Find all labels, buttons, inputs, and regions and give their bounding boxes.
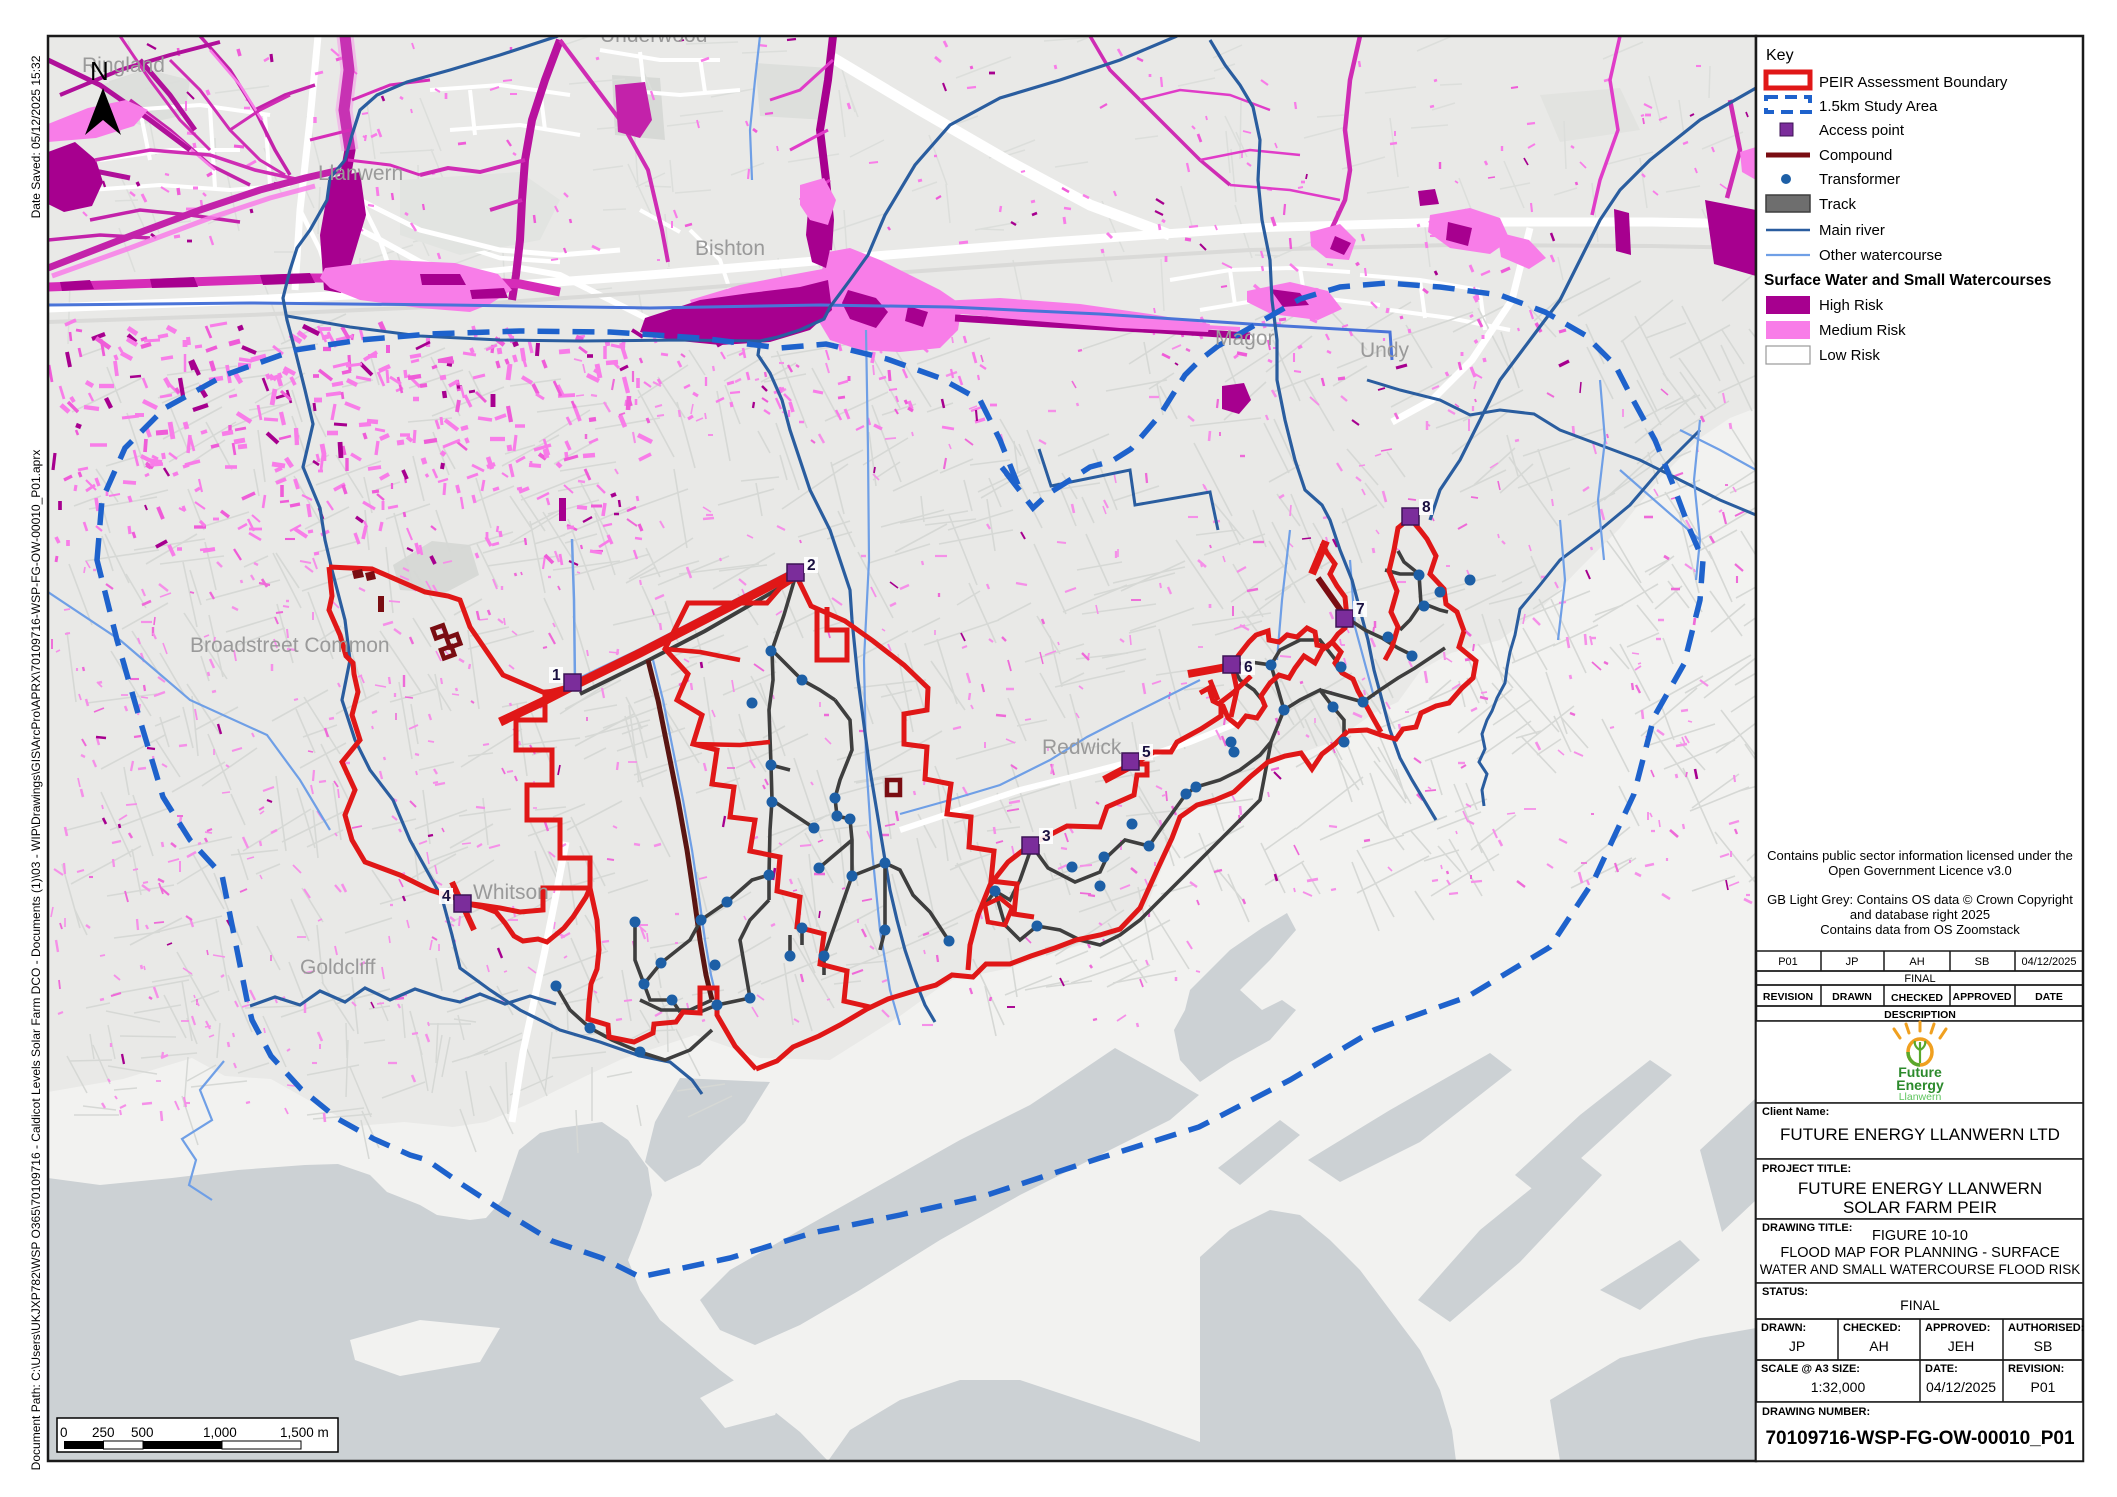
svg-text:04/12/2025: 04/12/2025 bbox=[1926, 1379, 1996, 1395]
svg-text:Key: Key bbox=[1766, 47, 1794, 64]
svg-text:SB: SB bbox=[2034, 1338, 2053, 1354]
svg-text:DATE: DATE bbox=[2035, 991, 2063, 1003]
svg-text:4: 4 bbox=[442, 888, 451, 905]
svg-text:Goldcliff: Goldcliff bbox=[300, 956, 376, 979]
svg-text:P01: P01 bbox=[1778, 956, 1798, 968]
svg-text:STATUS:: STATUS: bbox=[1762, 1286, 1808, 1298]
svg-text:Medium Risk: Medium Risk bbox=[1819, 322, 1906, 339]
svg-text:FUTURE ENERGY LLANWERN: FUTURE ENERGY LLANWERN bbox=[1798, 1179, 2042, 1198]
svg-text:DATE:: DATE: bbox=[1925, 1363, 1958, 1375]
svg-text:JEH: JEH bbox=[1948, 1338, 1974, 1354]
svg-text:WATER AND SMALL WATERCOURSE FL: WATER AND SMALL WATERCOURSE FLOOD RISK bbox=[1760, 1262, 2081, 1277]
svg-text:FLOOD MAP FOR PLANNING - SURFA: FLOOD MAP FOR PLANNING - SURFACE bbox=[1780, 1245, 2060, 1261]
svg-text:PEIR Assessment Boundary: PEIR Assessment Boundary bbox=[1819, 74, 2008, 91]
svg-text:Access point: Access point bbox=[1819, 122, 1905, 139]
svg-text:FIGURE 10-10: FIGURE 10-10 bbox=[1872, 1228, 1968, 1244]
svg-text:Contains data from OS Zoomstac: Contains data from OS Zoomstack bbox=[1820, 922, 2020, 937]
svg-text:DRAWING TITLE:: DRAWING TITLE: bbox=[1762, 1222, 1852, 1234]
svg-text:1.5km Study Area: 1.5km Study Area bbox=[1819, 98, 1938, 115]
svg-text:SOLAR FARM PEIR: SOLAR FARM PEIR bbox=[1843, 1198, 1997, 1217]
svg-text:SCALE @ A3 SIZE:: SCALE @ A3 SIZE: bbox=[1761, 1363, 1860, 1375]
svg-text:1,500 m: 1,500 m bbox=[280, 1425, 329, 1440]
svg-text:CHECKED: CHECKED bbox=[1891, 992, 1943, 1004]
svg-text:04/12/2025: 04/12/2025 bbox=[2021, 956, 2076, 968]
svg-text:JP: JP bbox=[1846, 956, 1859, 968]
svg-text:Main river: Main river bbox=[1819, 222, 1885, 239]
svg-text:Other watercourse: Other watercourse bbox=[1819, 247, 1942, 264]
svg-text:AUTHORISED:: AUTHORISED: bbox=[2008, 1322, 2084, 1334]
svg-text:REVISION: REVISION bbox=[1763, 991, 1813, 1003]
svg-text:Magor: Magor bbox=[1215, 327, 1275, 350]
svg-text:JP: JP bbox=[1789, 1338, 1805, 1354]
svg-text:Low Risk: Low Risk bbox=[1819, 347, 1880, 364]
svg-text:Date Saved: 05/12/2025 15:32: Date Saved: 05/12/2025 15:32 bbox=[29, 55, 43, 218]
svg-text:Contains public sector informa: Contains public sector information licen… bbox=[1767, 848, 2073, 863]
svg-text:DRAWN: DRAWN bbox=[1832, 991, 1872, 1003]
svg-text:DRAWN:: DRAWN: bbox=[1761, 1322, 1806, 1334]
svg-text:Client Name:: Client Name: bbox=[1762, 1106, 1829, 1118]
svg-text:CHECKED:: CHECKED: bbox=[1843, 1322, 1901, 1334]
svg-text:70109716-WSP-FG-OW-00010_P01: 70109716-WSP-FG-OW-00010_P01 bbox=[1765, 1428, 2074, 1449]
svg-text:1,000: 1,000 bbox=[203, 1425, 237, 1440]
svg-text:Open Government Licence v3.0: Open Government Licence v3.0 bbox=[1828, 863, 2012, 878]
svg-text:Undy: Undy bbox=[1360, 339, 1410, 362]
svg-text:DRAWING NUMBER:: DRAWING NUMBER: bbox=[1762, 1406, 1870, 1418]
svg-text:Document Path: C:\Users\UKJXP7: Document Path: C:\Users\UKJXP782\WSP O36… bbox=[29, 450, 43, 1471]
svg-text:Redwick: Redwick bbox=[1042, 736, 1122, 759]
svg-text:AH: AH bbox=[1869, 1338, 1888, 1354]
svg-text:N: N bbox=[90, 56, 109, 86]
svg-text:Llanwern: Llanwern bbox=[1899, 1091, 1942, 1103]
svg-text:Surface Water and Small Waterc: Surface Water and Small Watercourses bbox=[1764, 272, 2051, 289]
svg-text:7: 7 bbox=[1356, 601, 1365, 618]
svg-text:PROJECT TITLE:: PROJECT TITLE: bbox=[1762, 1163, 1851, 1175]
svg-text:Bishton: Bishton bbox=[695, 237, 765, 260]
svg-text:FUTURE ENERGY LLANWERN LTD: FUTURE ENERGY LLANWERN LTD bbox=[1780, 1125, 2060, 1144]
svg-text:5: 5 bbox=[1142, 744, 1151, 761]
svg-text:6: 6 bbox=[1244, 659, 1253, 676]
svg-text:500: 500 bbox=[131, 1425, 154, 1440]
svg-text:2: 2 bbox=[807, 557, 816, 574]
svg-text:250: 250 bbox=[92, 1425, 115, 1440]
svg-text:P01: P01 bbox=[2031, 1379, 2056, 1395]
svg-text:Broadstreet Common: Broadstreet Common bbox=[190, 634, 390, 657]
svg-text:Transformer: Transformer bbox=[1819, 171, 1900, 188]
svg-text:SB: SB bbox=[1975, 956, 1990, 968]
svg-text:High Risk: High Risk bbox=[1819, 297, 1884, 314]
svg-text:0: 0 bbox=[60, 1425, 68, 1440]
svg-text:3: 3 bbox=[1042, 828, 1051, 845]
svg-text:APPROVED: APPROVED bbox=[1953, 991, 2012, 1003]
svg-text:Track: Track bbox=[1819, 196, 1856, 213]
svg-text:DESCRIPTION: DESCRIPTION bbox=[1884, 1009, 1956, 1021]
svg-text:FINAL: FINAL bbox=[1900, 1297, 1940, 1313]
svg-text:REVISION:: REVISION: bbox=[2008, 1363, 2064, 1375]
svg-text:1:32,000: 1:32,000 bbox=[1811, 1379, 1866, 1395]
svg-text:FINAL: FINAL bbox=[1904, 973, 1935, 985]
svg-text:and database right 2025: and database right 2025 bbox=[1850, 907, 1990, 922]
svg-text:1: 1 bbox=[552, 667, 561, 684]
svg-text:APPROVED:: APPROVED: bbox=[1925, 1322, 1990, 1334]
svg-text:GB Light Grey: Contains OS dat: GB Light Grey: Contains OS data © Crown … bbox=[1767, 892, 2073, 907]
svg-text:Llanwern: Llanwern bbox=[318, 162, 403, 185]
svg-text:Whitson: Whitson bbox=[473, 881, 549, 904]
svg-text:AH: AH bbox=[1909, 956, 1924, 968]
svg-text:8: 8 bbox=[1422, 499, 1431, 516]
svg-text:Compound: Compound bbox=[1819, 147, 1892, 164]
